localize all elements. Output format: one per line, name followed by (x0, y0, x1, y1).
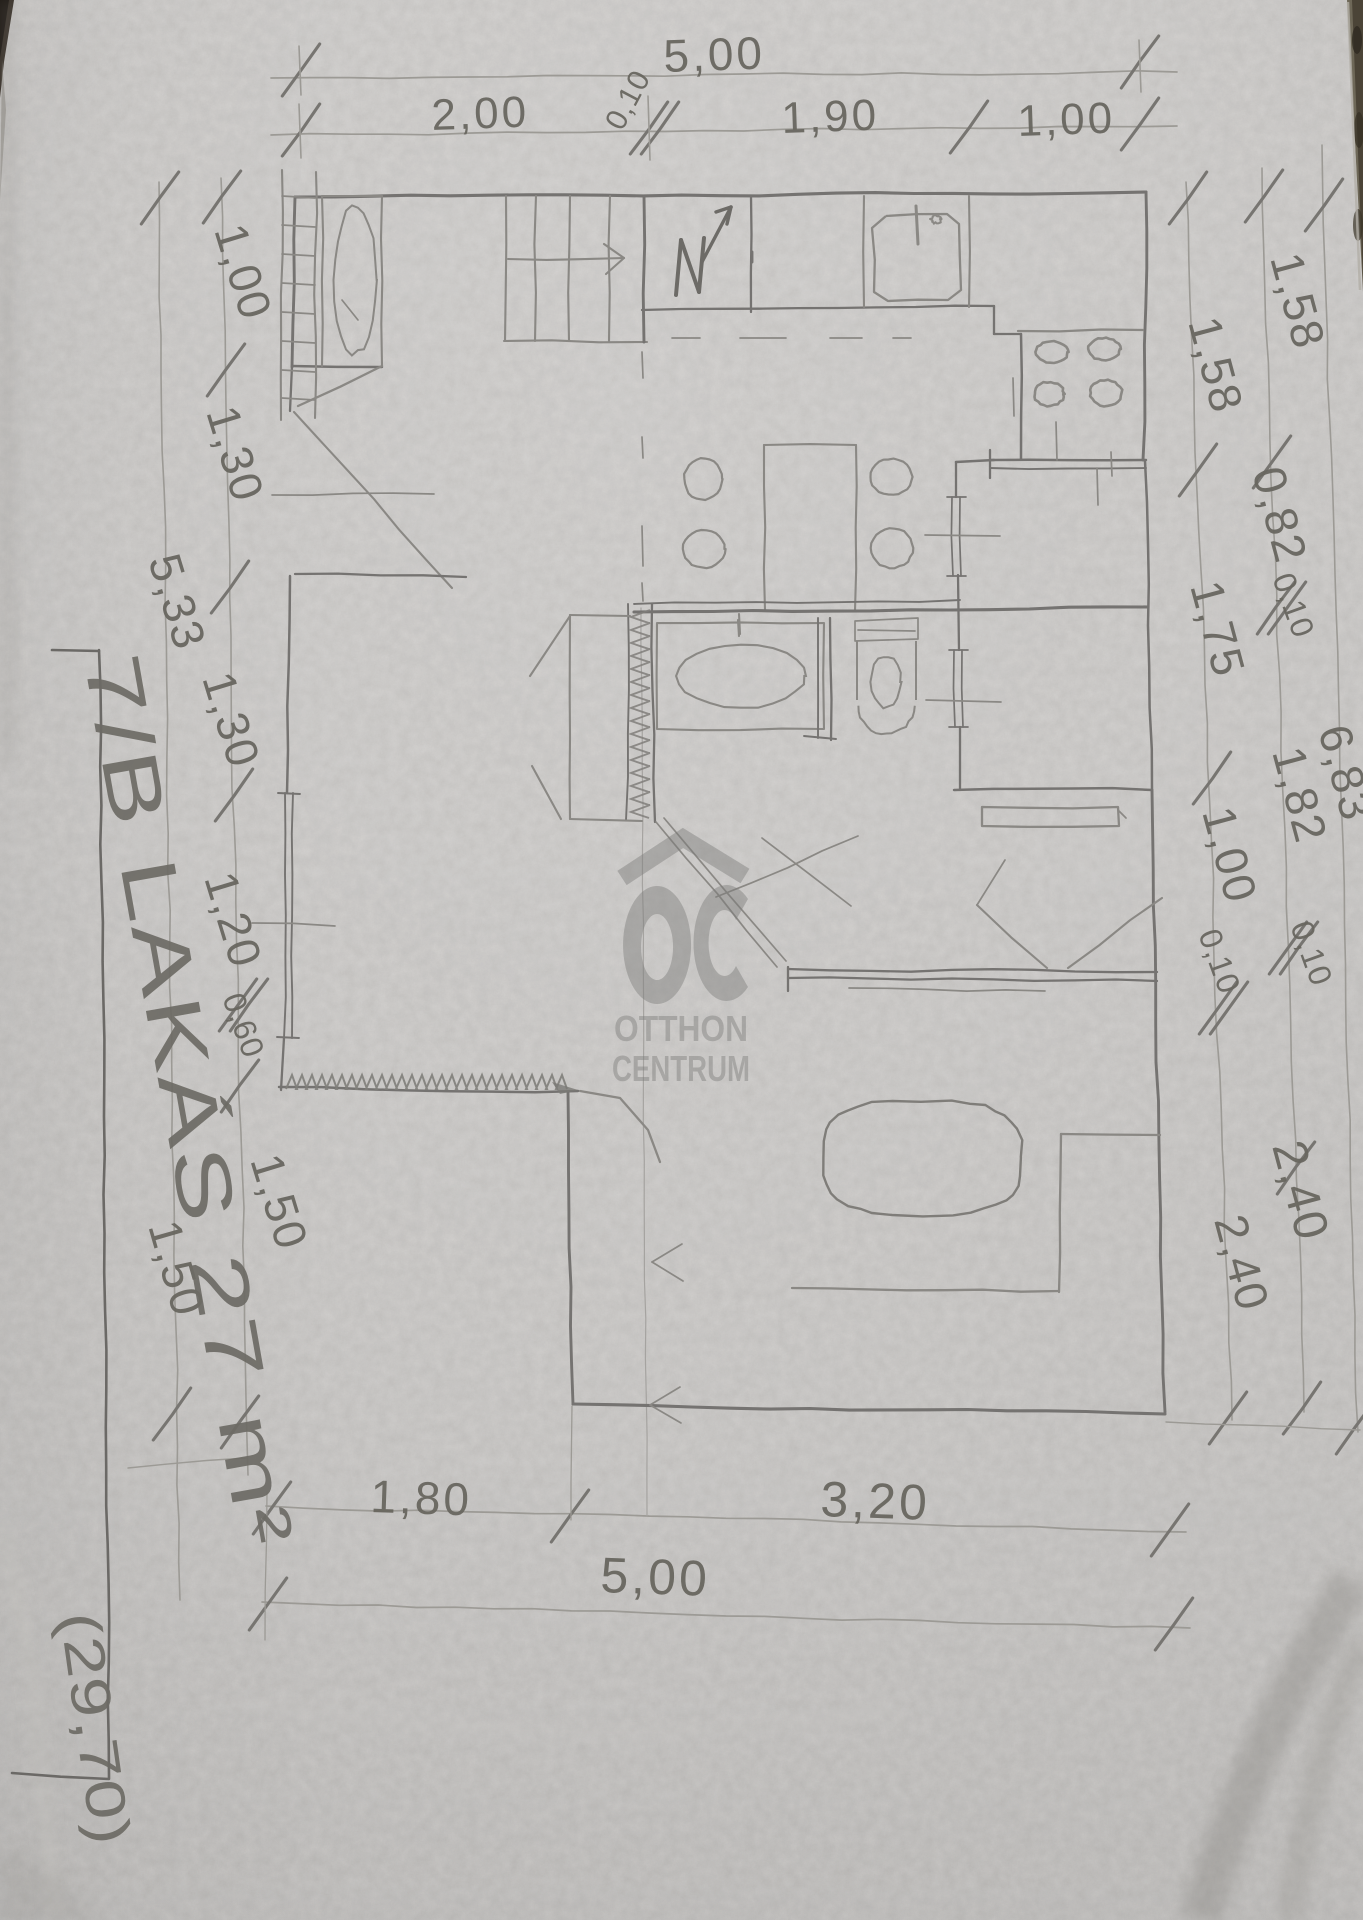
svg-text:OTTHON: OTTHON (614, 1008, 748, 1049)
svg-text:1,90: 1,90 (781, 91, 880, 143)
svg-text:1,00: 1,00 (1017, 94, 1116, 146)
svg-text:5,00: 5,00 (600, 1547, 711, 1607)
svg-text:1,80: 1,80 (370, 1470, 473, 1526)
svg-text:2,00: 2,00 (431, 88, 530, 140)
svg-text:5,00: 5,00 (663, 26, 766, 82)
svg-text:3,20: 3,20 (820, 1471, 931, 1531)
svg-text:CENTRUM: CENTRUM (612, 1048, 750, 1089)
